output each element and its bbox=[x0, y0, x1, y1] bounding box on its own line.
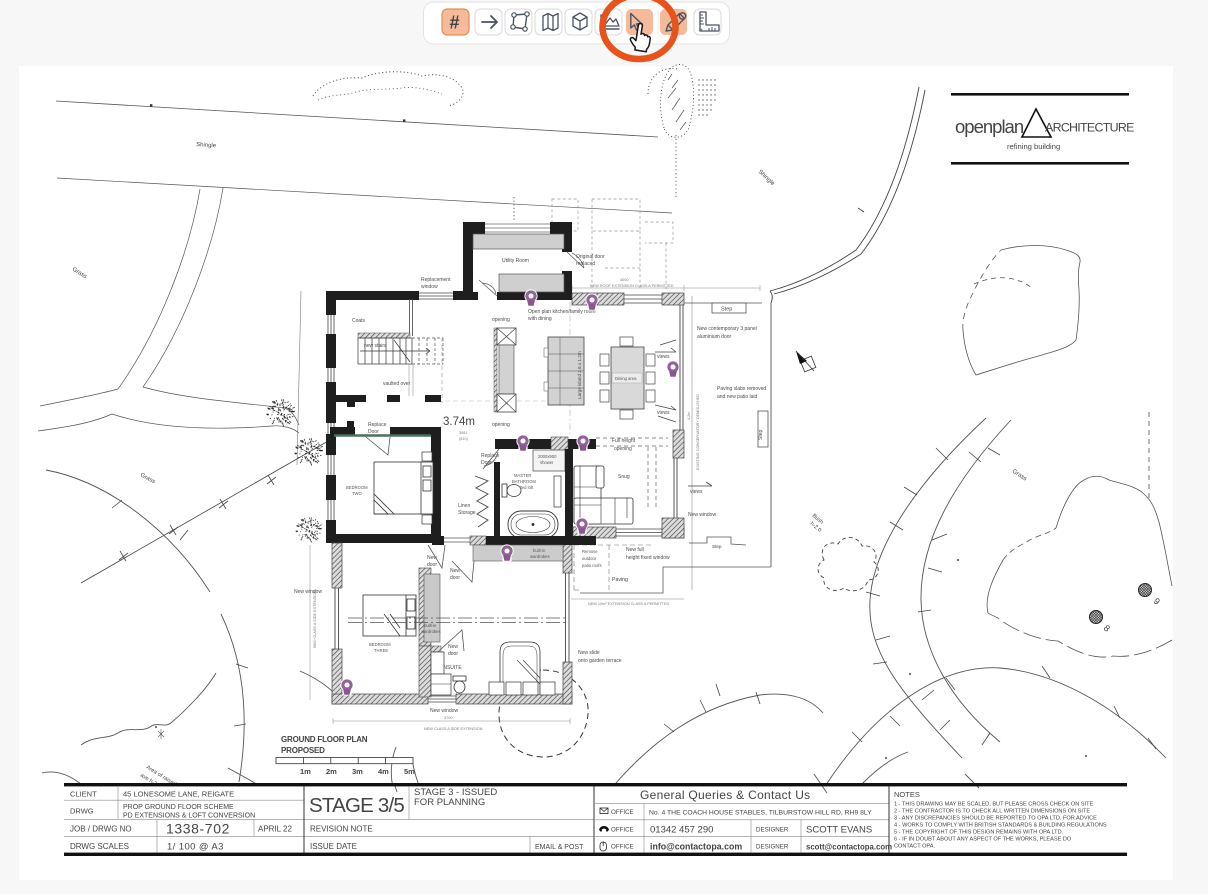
svg-text:THREE: THREE bbox=[374, 648, 388, 653]
svg-text:Coats: Coats bbox=[352, 318, 366, 324]
svg-text:JOB / DRWG NO: JOB / DRWG NO bbox=[70, 825, 132, 834]
svg-text:vaulted over: vaulted over bbox=[383, 381, 411, 387]
svg-text:DESIGNER: DESIGNER bbox=[756, 844, 789, 851]
svg-text:Door: Door bbox=[368, 429, 379, 435]
svg-text:EMAIL & POST: EMAIL & POST bbox=[535, 844, 584, 851]
svg-text:door: door bbox=[448, 651, 458, 657]
svg-text:PD EXTENSIONS & LOFT CONVERSIO: PD EXTENSIONS & LOFT CONVERSION bbox=[123, 813, 255, 820]
svg-text:NEW CLASS A SIDE EXTENSION: NEW CLASS A SIDE EXTENSION bbox=[424, 727, 483, 731]
svg-text:Remove: Remove bbox=[582, 549, 598, 554]
svg-text:4 - WORKS TO COMPLY WITH BRITI: 4 - WORKS TO COMPLY WITH BRITISH STANDAR… bbox=[894, 823, 1107, 829]
svg-text:New full: New full bbox=[626, 547, 644, 553]
svg-text:Door: Door bbox=[481, 460, 492, 466]
svg-text:4000: 4000 bbox=[620, 278, 628, 282]
svg-text:Large island 2.6 x 1.2m: Large island 2.6 x 1.2m bbox=[577, 351, 582, 399]
svg-text:openplan: openplan bbox=[955, 116, 1024, 137]
svg-text:PROPOSED: PROPOSED bbox=[281, 746, 325, 755]
svg-text:NEW ROOF EXTENSION CLASS A PER: NEW ROOF EXTENSION CLASS A PERMITTED bbox=[590, 284, 674, 288]
svg-text:Utility Room: Utility Room bbox=[502, 258, 529, 264]
svg-text:REVISION NOTE: REVISION NOTE bbox=[310, 825, 373, 834]
svg-text:STAGE 3/5: STAGE 3/5 bbox=[309, 794, 404, 817]
svg-text:refining building: refining building bbox=[1007, 142, 1060, 151]
svg-text:6 - IF IN DOUBT ABOUT ANY ASPE: 6 - IF IN DOUBT ABOUT ANY ASPECT OF THE … bbox=[894, 837, 1072, 843]
svg-text:wardrobes: wardrobes bbox=[421, 629, 441, 634]
svg-text:4.2m: 4.2m bbox=[687, 412, 691, 420]
svg-text:#: # bbox=[450, 13, 460, 33]
svg-text:CLIENT: CLIENT bbox=[70, 790, 97, 799]
svg-text:New window: New window bbox=[294, 589, 322, 595]
svg-text:No. 4 THE COACH HOUSE STABLES,: No. 4 THE COACH HOUSE STABLES, TILBURSTO… bbox=[649, 810, 872, 817]
svg-text:2 - THE CONTRACTOR IS TO CHECK: 2 - THE CONTRACTOR IS TO CHECK ALL WRITT… bbox=[894, 809, 1090, 815]
svg-text:(610): (610) bbox=[459, 437, 469, 441]
svg-text:1/ 100 @ A3: 1/ 100 @ A3 bbox=[167, 842, 224, 853]
svg-text:with dining: with dining bbox=[528, 316, 552, 322]
svg-text:BATHROOM: BATHROOM bbox=[512, 479, 536, 484]
svg-text:1338-702: 1338-702 bbox=[166, 821, 230, 837]
svg-text:General Queries & Contact Us: General Queries & Contact Us bbox=[640, 788, 810, 802]
svg-text:built-in: built-in bbox=[424, 623, 437, 628]
svg-text:DESIGNER: DESIGNER bbox=[756, 827, 789, 834]
svg-text:3 - ANY DISCREPANCIES SHOULD B: 3 - ANY DISCREPANCIES SHOULD BE REPORTED… bbox=[894, 816, 1097, 822]
svg-text:45 LONESOME LANE, REIGATE: 45 LONESOME LANE, REIGATE bbox=[123, 790, 234, 799]
svg-text:ARCHITECTURE: ARCHITECTURE bbox=[1045, 121, 1134, 135]
svg-text:door: door bbox=[450, 575, 460, 581]
svg-text:opening: opening bbox=[492, 317, 510, 323]
svg-text:door: door bbox=[427, 562, 437, 568]
svg-text:Original door: Original door bbox=[576, 254, 605, 260]
svg-text:5800 CLASS A SIDE EXTENSION: 5800 CLASS A SIDE EXTENSION bbox=[313, 590, 317, 648]
svg-text:onto garden terrace: onto garden terrace bbox=[578, 658, 622, 664]
svg-text:Step: Step bbox=[721, 307, 732, 313]
svg-text:BEDROOM: BEDROOM bbox=[369, 642, 391, 647]
svg-text:height fixed window: height fixed window bbox=[626, 555, 670, 561]
svg-text:SCOTT EVANS: SCOTT EVANS bbox=[806, 825, 872, 836]
svg-text:PROP GROUND FLOOR SCHEME: PROP GROUND FLOOR SCHEME bbox=[123, 804, 234, 811]
svg-text:2m: 2m bbox=[326, 767, 337, 776]
svg-text:New window: New window bbox=[430, 708, 458, 714]
svg-text:New contemporary 3 panel: New contemporary 3 panel bbox=[697, 326, 757, 332]
svg-text:Paving: Paving bbox=[612, 577, 628, 583]
svg-text:01342 457 290: 01342 457 290 bbox=[650, 825, 713, 836]
svg-text:Open plan kitchen/family room: Open plan kitchen/family room bbox=[528, 309, 596, 315]
svg-text:1m: 1m bbox=[300, 767, 311, 776]
svg-text:views: views bbox=[690, 489, 703, 495]
svg-text:1 - THIS DRAWING MAY BE SCALED: 1 - THIS DRAWING MAY BE SCALED, BUT PLEA… bbox=[894, 802, 1094, 808]
svg-text:built-in: built-in bbox=[533, 548, 546, 553]
svg-text:3.74m: 3.74m bbox=[443, 416, 475, 428]
svg-text:Replace: Replace bbox=[481, 453, 500, 459]
svg-text:New: New bbox=[427, 555, 437, 561]
svg-text:EXISTING CONSERVATORY DEMOLISH: EXISTING CONSERVATORY DEMOLISHED bbox=[696, 394, 700, 470]
svg-text:APRIL 22: APRIL 22 bbox=[258, 825, 292, 834]
svg-text:replaced: replaced bbox=[576, 261, 595, 267]
svg-text:3581: 3581 bbox=[459, 431, 467, 435]
svg-text:outdoor: outdoor bbox=[582, 556, 597, 561]
svg-text:ISSUE DATE: ISSUE DATE bbox=[310, 842, 357, 851]
svg-text:NEW 10m² EXTENSION CLASS A PER: NEW 10m² EXTENSION CLASS A PERMITTED bbox=[588, 602, 669, 606]
svg-text:FOR PLANNING: FOR PLANNING bbox=[414, 797, 485, 808]
svg-text:opening: opening bbox=[492, 422, 510, 428]
svg-text:aluminium door: aluminium door bbox=[697, 334, 732, 340]
svg-text:Replace: Replace bbox=[368, 422, 387, 428]
svg-text:opening: opening bbox=[614, 446, 632, 452]
svg-text:patio roofs: patio roofs bbox=[582, 563, 602, 568]
svg-text:5 - THE COPYRIGHT OF THIS DESI: 5 - THE COPYRIGHT OF THIS DESIGN REMAINS… bbox=[894, 830, 1064, 836]
svg-text:DRWG SCALES: DRWG SCALES bbox=[70, 842, 129, 851]
svg-text:3700: 3700 bbox=[444, 716, 452, 720]
svg-text:info@contactopa.com: info@contactopa.com bbox=[650, 842, 742, 852]
svg-text:Step: Step bbox=[758, 429, 764, 440]
svg-text:DRWG: DRWG bbox=[70, 807, 94, 816]
svg-text:shower: shower bbox=[540, 460, 554, 465]
svg-text:Dining area: Dining area bbox=[615, 376, 637, 381]
svg-text:New slide: New slide bbox=[578, 650, 600, 656]
svg-text:New: New bbox=[450, 568, 460, 574]
svg-text:scott@contactopa.com: scott@contactopa.com bbox=[806, 843, 892, 852]
svg-text:and new patio laid: and new patio laid bbox=[717, 394, 758, 400]
svg-text:views: views bbox=[657, 410, 670, 416]
svg-text:new stairs: new stairs bbox=[364, 343, 387, 349]
svg-text:Storage: Storage bbox=[458, 510, 476, 516]
svg-text:Paving slabs removed: Paving slabs removed bbox=[717, 386, 766, 392]
svg-text:3m: 3m bbox=[352, 767, 363, 776]
svg-text:Replacement: Replacement bbox=[421, 277, 451, 283]
svg-text:OFFICE: OFFICE bbox=[611, 844, 634, 851]
svg-text:wardrobes: wardrobes bbox=[530, 554, 550, 559]
svg-text:GROUND FLOOR PLAN: GROUND FLOOR PLAN bbox=[281, 735, 368, 744]
svg-text:NOTES: NOTES bbox=[894, 790, 920, 799]
svg-text:Snug: Snug bbox=[618, 474, 630, 480]
svg-text:2000x900: 2000x900 bbox=[538, 454, 557, 459]
svg-text:Linen: Linen bbox=[458, 503, 470, 509]
svg-text:CONTACT OPA.: CONTACT OPA. bbox=[894, 844, 935, 850]
svg-text:window: window bbox=[421, 284, 438, 290]
svg-text:BEDROOM: BEDROOM bbox=[346, 485, 368, 490]
svg-text:OFFICE: OFFICE bbox=[611, 809, 634, 816]
svg-text:TWO: TWO bbox=[352, 491, 363, 496]
svg-text:MASTER: MASTER bbox=[514, 473, 531, 478]
svg-text:views: views bbox=[657, 354, 670, 360]
svg-text:New window: New window bbox=[688, 512, 716, 518]
svg-text:4m: 4m bbox=[378, 767, 389, 776]
svg-text:OFFICE: OFFICE bbox=[611, 827, 634, 834]
svg-text:Full height: Full height bbox=[612, 438, 636, 444]
svg-text:New: New bbox=[448, 644, 458, 650]
svg-text:5m: 5m bbox=[404, 767, 415, 776]
svg-text:Step: Step bbox=[712, 544, 722, 549]
